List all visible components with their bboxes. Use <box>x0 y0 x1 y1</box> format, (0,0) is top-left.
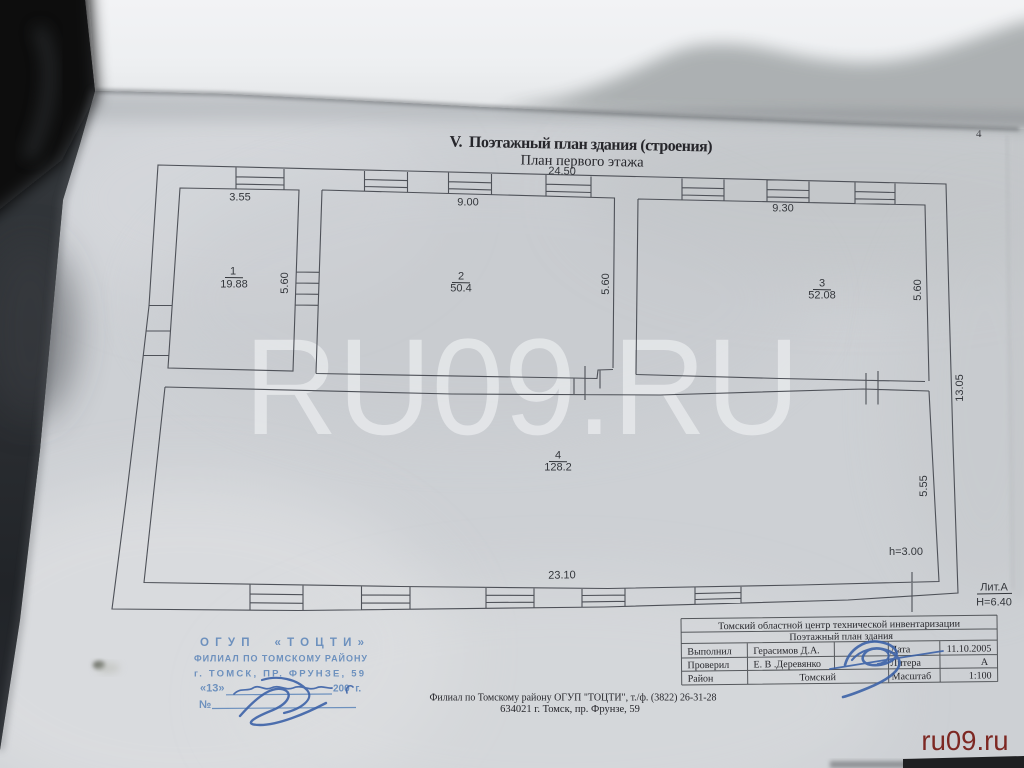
svg-text:5.55: 5.55 <box>918 475 930 496</box>
svg-text:128.2: 128.2 <box>544 462 572 474</box>
svg-text:Е. В .Деревянко: Е. В .Деревянко <box>753 659 821 671</box>
svg-text:1: 1 <box>230 266 236 278</box>
svg-text:4: 4 <box>555 450 561 462</box>
svg-text:Н=6.40: Н=6.40 <box>976 597 1012 609</box>
svg-text:А: А <box>981 657 989 668</box>
svg-text:Проверил: Проверил <box>687 660 729 671</box>
svg-text:5.60: 5.60 <box>279 272 291 293</box>
svg-text:2: 2 <box>458 271 464 283</box>
svg-text:19.88: 19.88 <box>220 279 248 291</box>
svg-text:Герасимов Д.А.: Герасимов Д.А. <box>753 645 819 657</box>
svg-text:3.55: 3.55 <box>229 192 250 204</box>
svg-text:ru09.ru: ru09.ru <box>921 725 1008 756</box>
svg-text:1:100: 1:100 <box>969 670 992 681</box>
svg-text:52.08: 52.08 <box>808 290 836 302</box>
svg-text:5.60: 5.60 <box>600 273 612 294</box>
svg-text:№: № <box>199 699 211 711</box>
svg-text:23.10: 23.10 <box>548 569 576 581</box>
svg-text:«13»: «13» <box>200 683 224 695</box>
svg-text:h=3.00: h=3.00 <box>889 546 923 558</box>
svg-text:9.30: 9.30 <box>772 203 793 215</box>
svg-text:3: 3 <box>819 278 825 290</box>
svg-text:ФИЛИАЛ ПО ТОМСКОМУ РАЙОНУ: ФИЛИАЛ ПО ТОМСКОМУ РАЙОНУ <box>194 653 367 664</box>
svg-text:Район: Район <box>688 673 714 684</box>
svg-text:Филиал по Томскому району ОГУП: Филиал по Томскому району ОГУП "ТОЦТИ", … <box>430 693 717 704</box>
svg-text:634021 г. Томск, пр. Фрунзе, 5: 634021 г. Томск, пр. Фрунзе, 59 <box>500 704 640 715</box>
svg-text:Выполнил: Выполнил <box>687 646 731 657</box>
svg-text:13.05: 13.05 <box>954 374 966 402</box>
svg-text:RU09.RU: RU09.RU <box>244 311 800 464</box>
svg-text:Томский: Томский <box>799 672 836 683</box>
svg-text:11.10.2005: 11.10.2005 <box>947 643 992 654</box>
svg-text:4: 4 <box>976 128 982 140</box>
svg-text:5.60: 5.60 <box>912 279 924 300</box>
svg-text:Лит.А: Лит.А <box>980 582 1008 594</box>
svg-text:Масштаб: Масштаб <box>892 671 932 682</box>
svg-text:План первого этажа: План первого этажа <box>520 152 644 170</box>
svg-text:50.4: 50.4 <box>450 283 471 295</box>
svg-text:9.00: 9.00 <box>457 197 478 209</box>
